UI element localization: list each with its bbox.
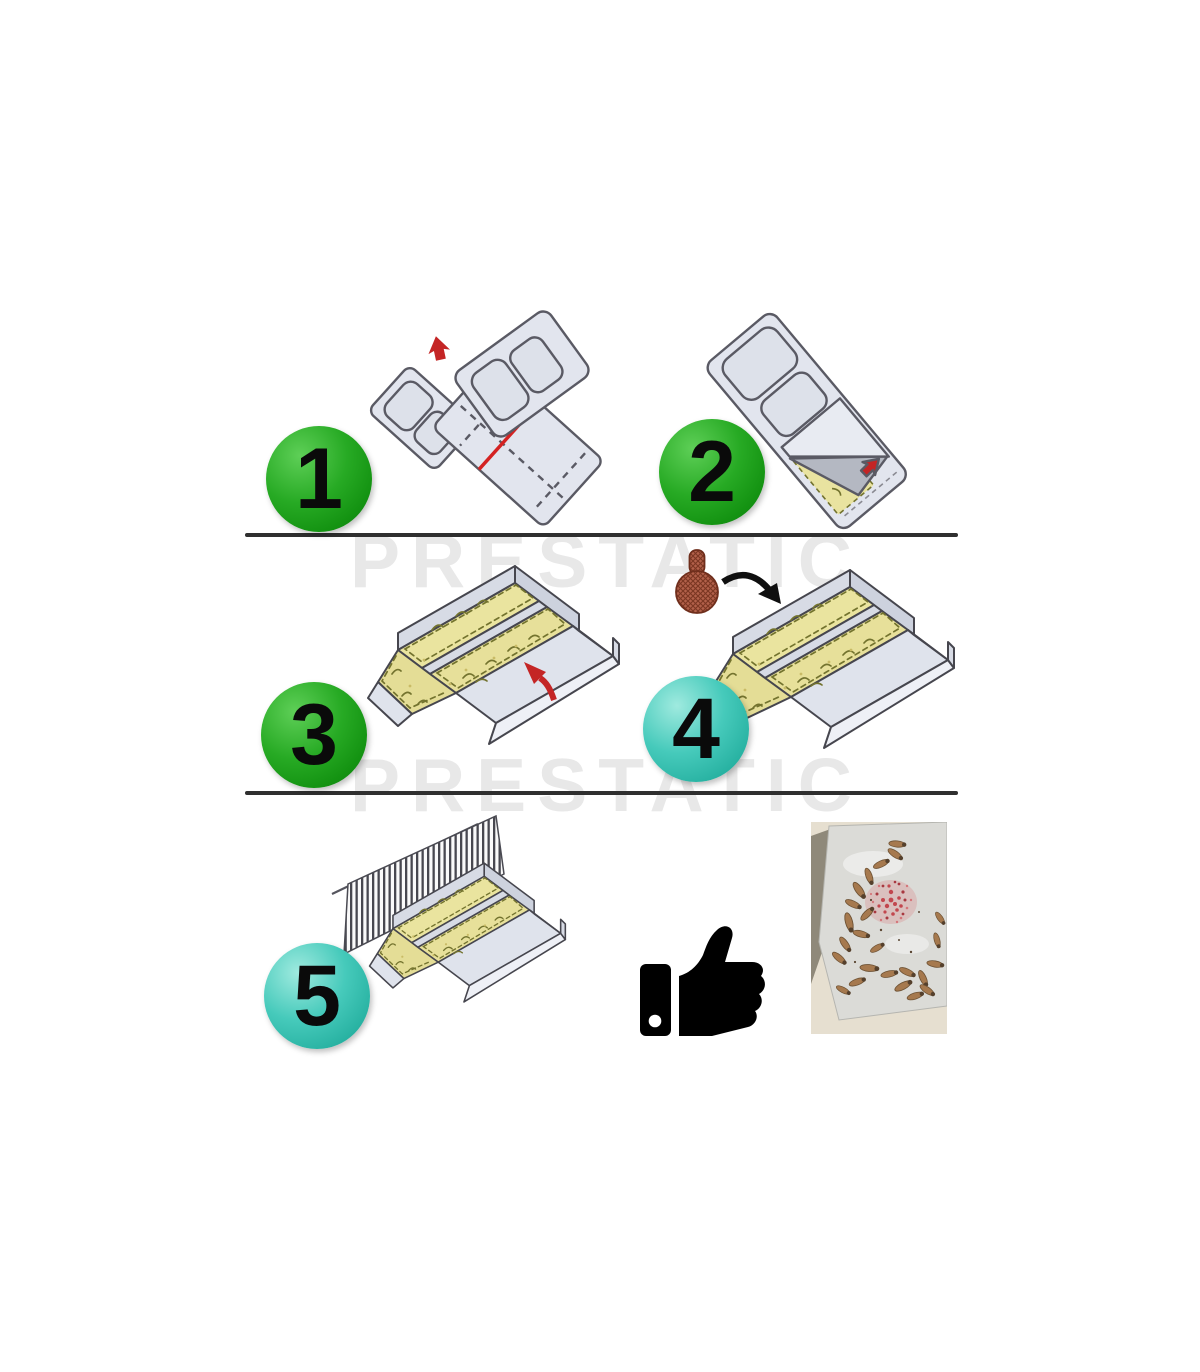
- step-3-number: 3: [290, 686, 338, 785]
- step-4-number: 4: [672, 680, 720, 779]
- step-5-badge: 5: [264, 943, 370, 1049]
- thumbs-up-icon: [637, 924, 771, 1044]
- bait-capsule-icon: [676, 550, 718, 613]
- trapped-insects-photo: [811, 822, 947, 1034]
- step-1-number: 1: [295, 430, 343, 529]
- step-2-number: 2: [688, 423, 736, 522]
- black-arrow-icon: [723, 575, 781, 604]
- red-arrow-icon: [425, 334, 452, 362]
- step-4-badge: 4: [643, 676, 749, 782]
- unfold-trap-sheet-icon: [360, 296, 615, 532]
- step-1-badge: 1: [266, 426, 372, 532]
- bait-granules: [865, 880, 917, 924]
- step-5-number: 5: [293, 947, 341, 1046]
- section-divider-line: [245, 791, 958, 795]
- step-2-badge: 2: [659, 419, 765, 525]
- folded-glue-trap-icon: [362, 552, 628, 758]
- instruction-sheet: PRESTATIC PRESTATIC: [0, 0, 1200, 1372]
- step-3-badge: 3: [261, 682, 367, 788]
